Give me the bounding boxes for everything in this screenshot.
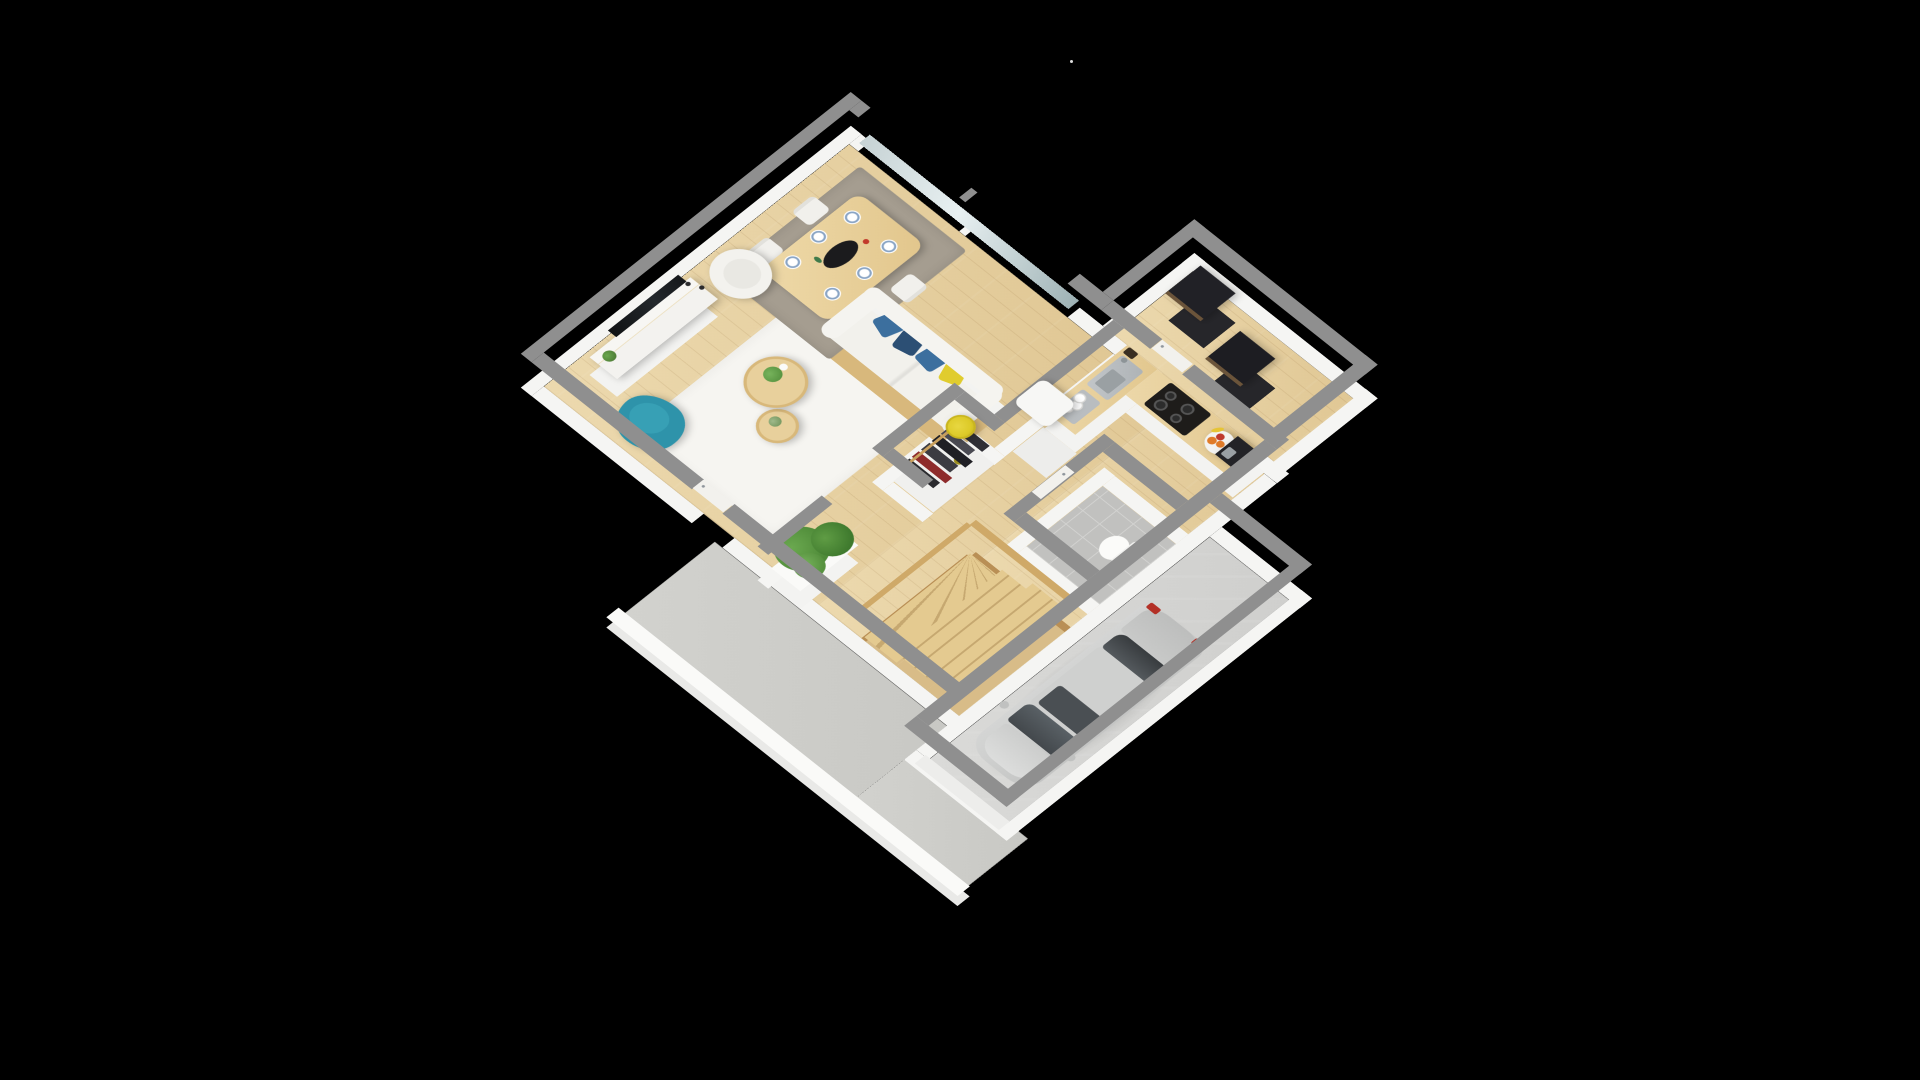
- stage: [0, 0, 1920, 1080]
- window-mullion: [959, 188, 977, 203]
- artifact-dot: [1070, 60, 1073, 63]
